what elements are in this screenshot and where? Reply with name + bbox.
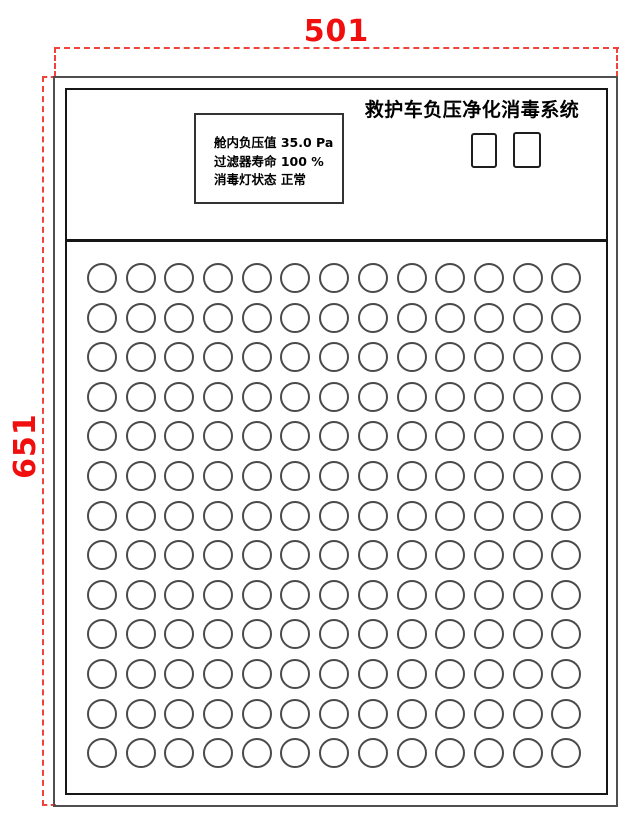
perforation-hole — [474, 501, 504, 531]
perforation-hole — [358, 303, 388, 333]
perforation-hole — [513, 580, 543, 610]
perforation-hole — [203, 659, 233, 689]
perforation-hole — [358, 699, 388, 729]
perforation-hole — [358, 619, 388, 649]
height-dimension-label: 651 — [8, 401, 44, 491]
perforation-hole — [203, 421, 233, 451]
perforation-hole — [513, 619, 543, 649]
perforation-hole — [87, 738, 117, 768]
perforation-hole — [513, 263, 543, 293]
perforation-hole — [474, 738, 504, 768]
perforation-hole — [203, 382, 233, 412]
perforation-hole — [242, 619, 272, 649]
perforation-hole — [164, 303, 194, 333]
perforation-hole — [280, 540, 310, 570]
perforation-hole — [358, 580, 388, 610]
perforation-hole — [203, 699, 233, 729]
perforation-hole — [126, 303, 156, 333]
perforation-hole — [513, 421, 543, 451]
perforation-hole — [164, 263, 194, 293]
perforation-hole — [280, 580, 310, 610]
perforation-hole — [513, 501, 543, 531]
perforation-hole — [551, 382, 581, 412]
perforation-hole — [474, 421, 504, 451]
perforation-hole — [474, 461, 504, 491]
perforation-hole — [164, 501, 194, 531]
perforation-hole — [435, 659, 465, 689]
indicator-square-2 — [513, 132, 541, 168]
perforation-hole — [435, 540, 465, 570]
perforation-hole — [397, 659, 427, 689]
perforation-hole — [358, 382, 388, 412]
perforation-hole — [242, 382, 272, 412]
perforation-hole — [126, 501, 156, 531]
perforation-hole — [126, 421, 156, 451]
perforation-hole — [203, 461, 233, 491]
display-line-pressure: 舱内负压值 35.0 Pa — [214, 134, 336, 153]
status-display-box: 舱内负压值 35.0 Pa 过滤器寿命 100 % 消毒灯状态 正常 — [194, 113, 344, 204]
perforation-hole — [551, 699, 581, 729]
perforation-hole — [319, 540, 349, 570]
perforation-hole — [435, 461, 465, 491]
perforation-hole — [164, 421, 194, 451]
perforation-hole — [474, 263, 504, 293]
perforation-hole — [435, 619, 465, 649]
perforation-hole — [164, 540, 194, 570]
perforation-hole — [435, 303, 465, 333]
perforation-hole — [551, 263, 581, 293]
perforation-hole — [280, 421, 310, 451]
perforation-hole — [474, 303, 504, 333]
perforation-hole — [87, 501, 117, 531]
perforation-hole — [126, 461, 156, 491]
perforation-hole — [126, 738, 156, 768]
top-dimension-extension-right — [616, 47, 618, 77]
technical-drawing-canvas: 501 651 救护车负压净化消毒系统 舱内负压值 35.0 Pa 过滤器寿命 … — [0, 0, 643, 837]
perforation-hole — [87, 580, 117, 610]
perforation-hole — [164, 619, 194, 649]
perforation-hole — [319, 342, 349, 372]
perforation-hole — [358, 342, 388, 372]
perforation-hole — [435, 699, 465, 729]
perforation-hole — [435, 263, 465, 293]
perforation-hole — [126, 580, 156, 610]
perforation-hole — [87, 461, 117, 491]
perforation-hole — [358, 659, 388, 689]
perforation-hole — [319, 303, 349, 333]
perforation-hole — [319, 580, 349, 610]
perforation-hole — [164, 461, 194, 491]
perforation-hole — [280, 461, 310, 491]
perforation-hole — [358, 738, 388, 768]
top-dimension-extension-left — [54, 47, 56, 77]
perforation-hole — [242, 303, 272, 333]
perforation-hole — [319, 382, 349, 412]
perforation-hole — [280, 659, 310, 689]
perforation-hole — [551, 303, 581, 333]
perforation-hole — [474, 540, 504, 570]
perforation-hole — [513, 659, 543, 689]
perforation-hole — [397, 580, 427, 610]
perforation-hole — [203, 580, 233, 610]
indicator-square-1 — [471, 133, 497, 168]
perforation-hole — [242, 699, 272, 729]
perforation-hole — [126, 263, 156, 293]
perforation-hole — [126, 382, 156, 412]
perforation-hole — [435, 580, 465, 610]
perforation-hole — [358, 263, 388, 293]
perforation-hole — [280, 303, 310, 333]
perforation-hole — [513, 342, 543, 372]
perforation-hole — [474, 619, 504, 649]
perforation-hole — [242, 540, 272, 570]
perforation-hole — [319, 738, 349, 768]
perforation-hole — [397, 619, 427, 649]
perforation-hole — [164, 580, 194, 610]
perforation-hole — [280, 699, 310, 729]
panel-title: 救护车负压净化消毒系统 — [358, 95, 586, 122]
perforation-hole — [203, 540, 233, 570]
perforation-hole — [358, 540, 388, 570]
perforation-hole — [87, 659, 117, 689]
perforation-hole — [242, 738, 272, 768]
perforation-hole — [319, 659, 349, 689]
perforation-hole — [474, 580, 504, 610]
perforation-hole — [397, 540, 427, 570]
perforation-hole — [203, 342, 233, 372]
perforation-hole — [435, 421, 465, 451]
perforation-hole — [87, 303, 117, 333]
perforation-hole — [242, 659, 272, 689]
perforation-hole — [435, 342, 465, 372]
perforation-hole — [513, 303, 543, 333]
perforation-hole — [513, 738, 543, 768]
perforation-hole-grid — [87, 263, 581, 768]
display-line-filter-life: 过滤器寿命 100 % — [214, 153, 336, 172]
perforation-hole — [242, 501, 272, 531]
perforation-hole — [87, 619, 117, 649]
perforation-hole — [513, 699, 543, 729]
perforation-hole — [319, 501, 349, 531]
perforation-hole — [397, 303, 427, 333]
perforation-hole — [513, 461, 543, 491]
perforation-hole — [358, 421, 388, 451]
perforation-hole — [126, 540, 156, 570]
perforation-hole — [87, 540, 117, 570]
perforation-hole — [513, 540, 543, 570]
perforation-hole — [203, 501, 233, 531]
perforation-hole — [87, 421, 117, 451]
width-dimension-label: 501 — [54, 16, 619, 48]
perforation-hole — [203, 263, 233, 293]
perforation-hole — [397, 382, 427, 412]
perforation-hole — [203, 738, 233, 768]
perforation-hole — [474, 699, 504, 729]
perforation-hole — [319, 461, 349, 491]
perforation-hole — [397, 421, 427, 451]
perforation-hole — [551, 659, 581, 689]
perforation-hole — [164, 659, 194, 689]
perforation-hole — [551, 619, 581, 649]
perforation-hole — [474, 659, 504, 689]
perforation-hole — [397, 461, 427, 491]
perforation-hole — [242, 263, 272, 293]
perforation-hole — [435, 501, 465, 531]
perforation-hole — [164, 342, 194, 372]
perforation-hole — [358, 501, 388, 531]
perforation-hole — [164, 699, 194, 729]
perforation-hole — [203, 619, 233, 649]
perforation-hole — [513, 382, 543, 412]
perforation-hole — [242, 421, 272, 451]
perforation-hole — [474, 382, 504, 412]
perforation-hole — [319, 421, 349, 451]
perforation-hole — [435, 382, 465, 412]
perforation-hole — [164, 738, 194, 768]
perforation-hole — [242, 342, 272, 372]
perforation-hole — [87, 699, 117, 729]
perforation-hole — [358, 461, 388, 491]
perforation-hole — [551, 580, 581, 610]
perforation-hole — [280, 263, 310, 293]
perforation-hole — [280, 501, 310, 531]
perforation-hole — [242, 580, 272, 610]
perforation-hole — [397, 342, 427, 372]
perforation-hole — [551, 461, 581, 491]
perforation-hole — [126, 619, 156, 649]
perforation-hole — [397, 263, 427, 293]
perforation-hole — [164, 382, 194, 412]
perforation-hole — [551, 540, 581, 570]
perforation-hole — [397, 738, 427, 768]
perforation-hole — [397, 501, 427, 531]
perforation-hole — [87, 342, 117, 372]
perforation-hole — [126, 699, 156, 729]
perforation-hole — [280, 342, 310, 372]
perforation-hole — [435, 738, 465, 768]
perforation-hole — [551, 342, 581, 372]
perforation-hole — [551, 421, 581, 451]
perforation-hole — [319, 619, 349, 649]
perforation-hole — [280, 619, 310, 649]
perforation-hole — [87, 263, 117, 293]
perforation-hole — [126, 659, 156, 689]
display-line-lamp-status: 消毒灯状态 正常 — [214, 171, 336, 190]
perforation-hole — [87, 382, 117, 412]
perforation-hole — [551, 738, 581, 768]
perforation-hole — [126, 342, 156, 372]
perforation-hole — [319, 699, 349, 729]
perforation-hole — [474, 342, 504, 372]
perforation-hole — [242, 461, 272, 491]
perforation-hole — [551, 501, 581, 531]
perforation-hole — [280, 382, 310, 412]
header-divider-line — [66, 239, 607, 242]
perforation-hole — [280, 738, 310, 768]
perforation-hole — [397, 699, 427, 729]
perforation-hole — [319, 263, 349, 293]
perforation-hole — [203, 303, 233, 333]
